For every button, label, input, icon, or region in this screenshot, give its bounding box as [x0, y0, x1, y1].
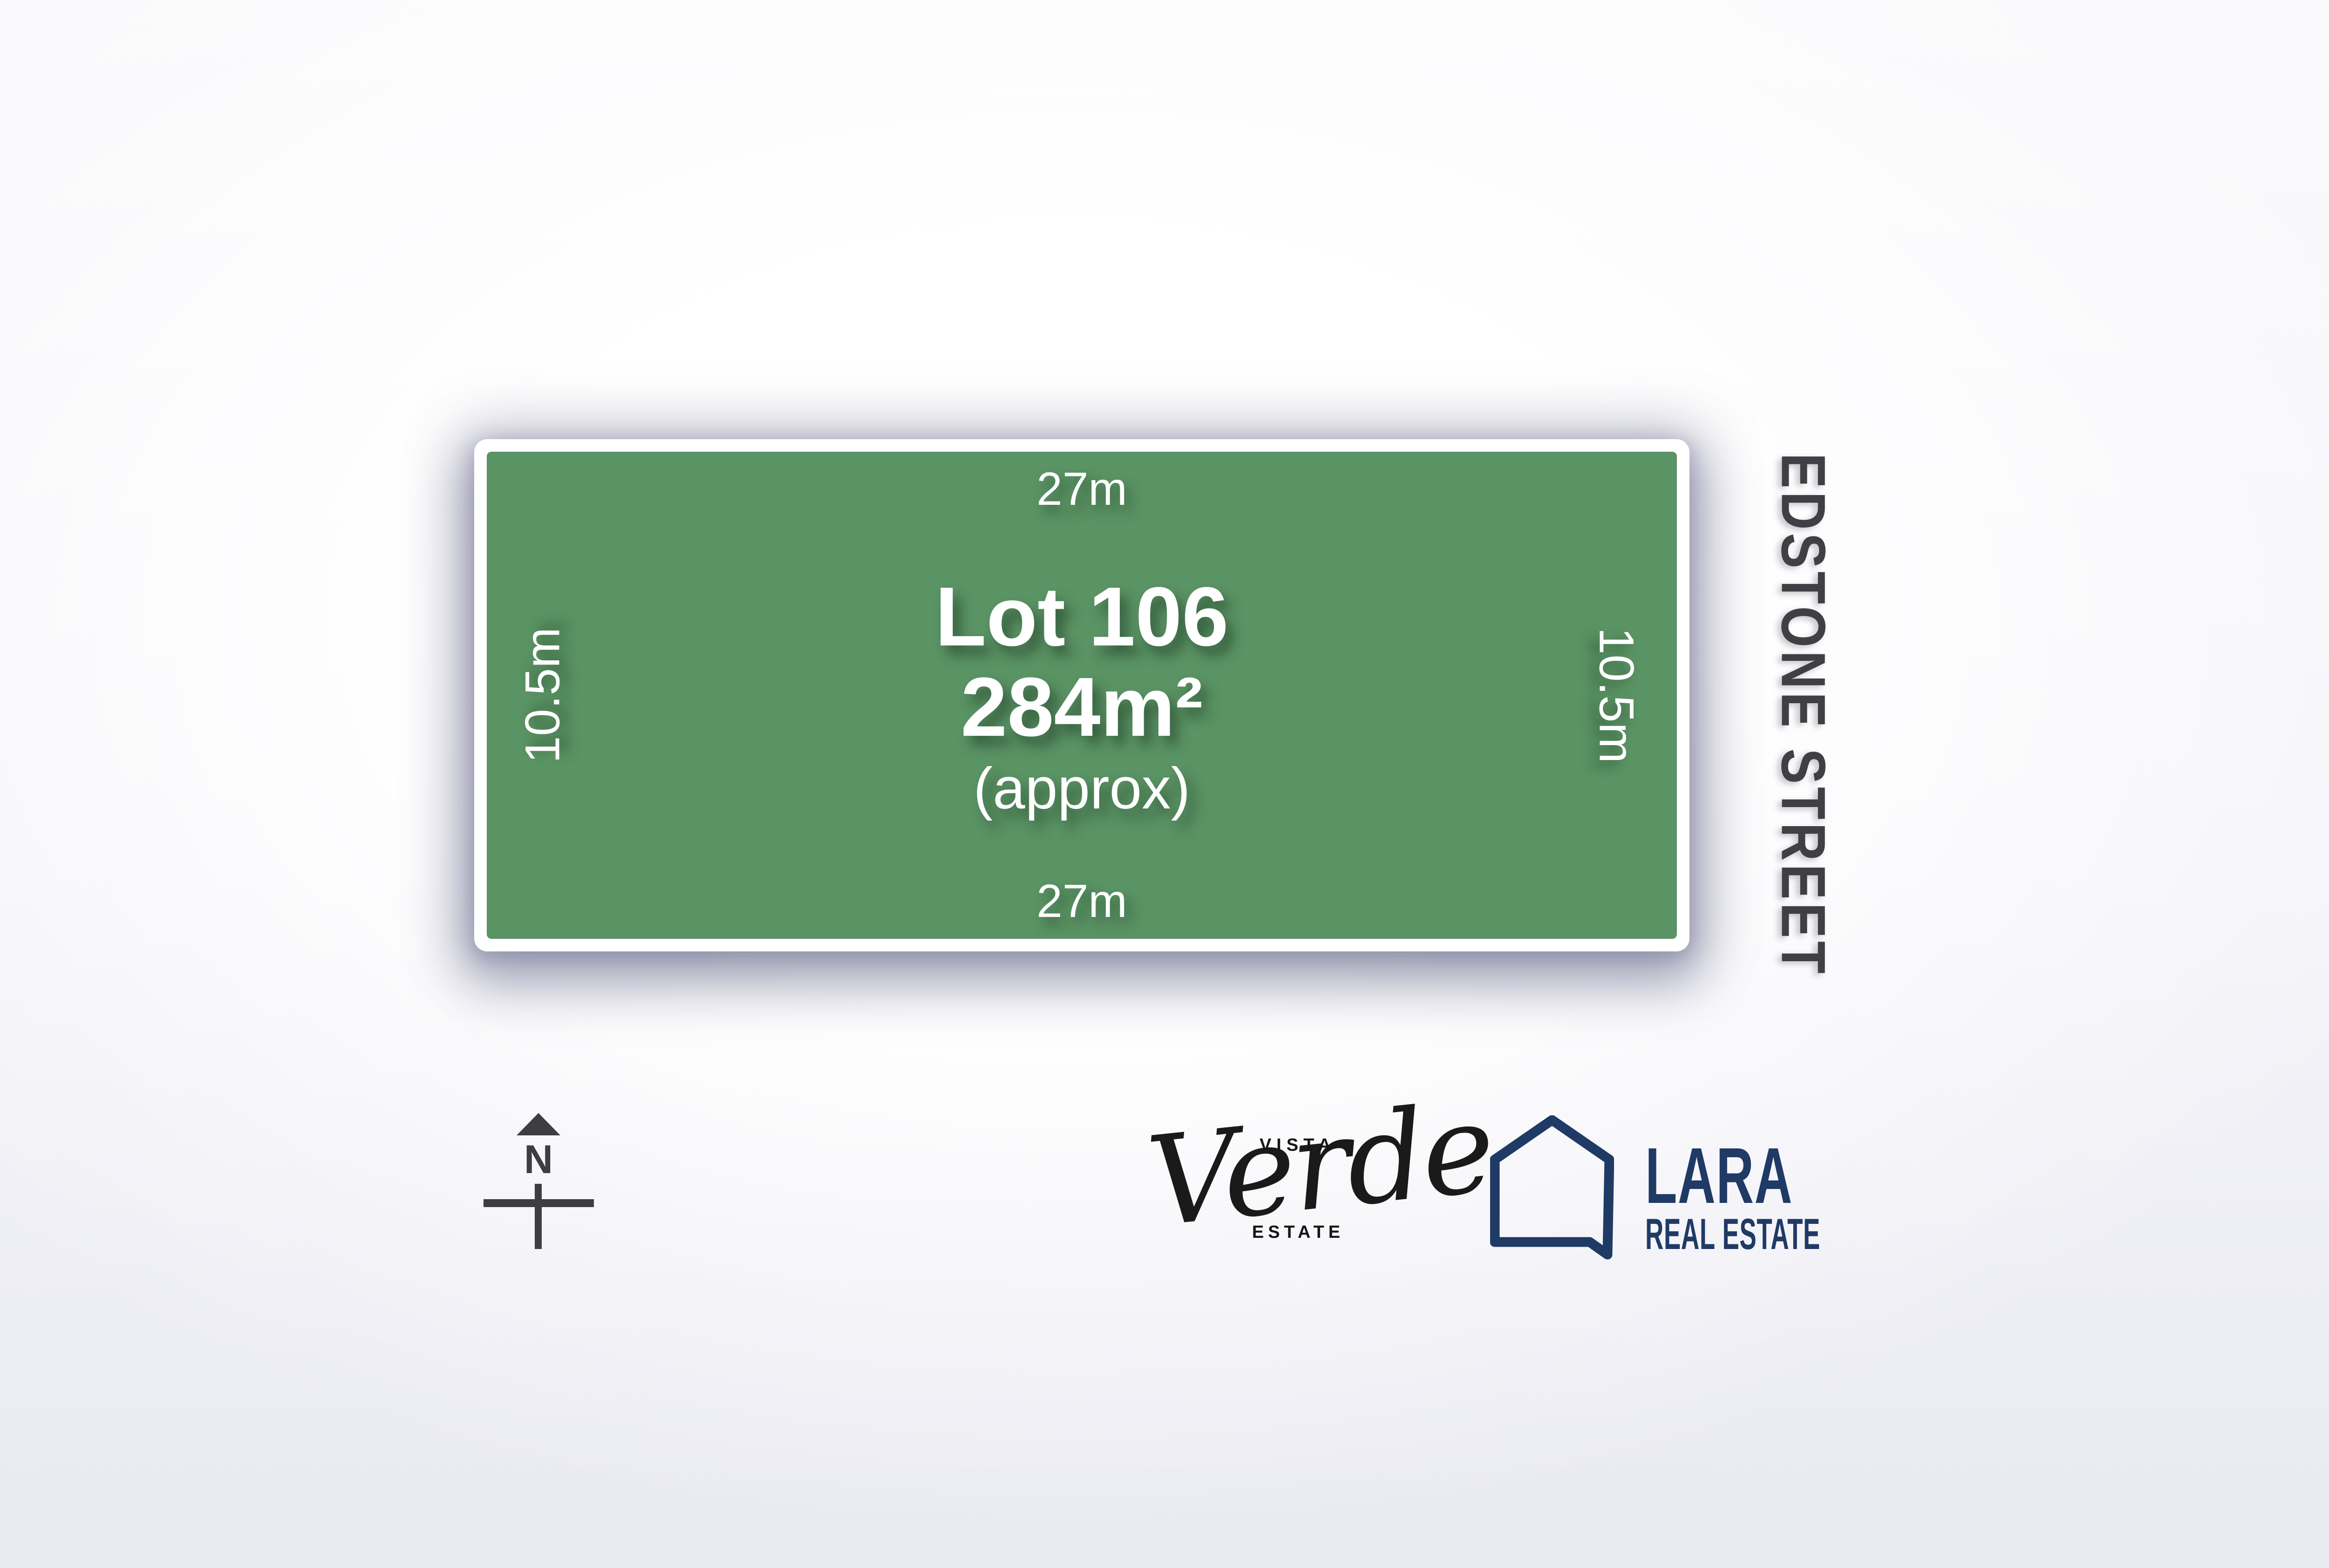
compass-north-label: N	[524, 1140, 553, 1180]
street-label: EDSTONE STREET	[1768, 453, 1839, 977]
vista-verde-bottom-label: ESTATE	[1252, 1223, 1344, 1241]
house-outline-icon	[1490, 1115, 1614, 1261]
lara-subtitle: REAL ESTATE	[1645, 1212, 1820, 1256]
lot-advertisement: 27m 27m 10.5m 10.5m Lot 106 284m² (appro…	[0, 0, 2329, 1568]
compass-cross-vertical-icon	[535, 1184, 542, 1249]
dimension-bottom: 27m	[474, 878, 1689, 924]
north-arrow-icon	[517, 1113, 560, 1135]
lot-info-block: Lot 106 284m² (approx)	[474, 575, 1689, 818]
vista-verde-top-label: VISTA	[1260, 1136, 1336, 1154]
lara-wordmark: LARA	[1645, 1136, 1793, 1215]
lot-area-qualifier: (approx)	[474, 760, 1689, 818]
lot-number-label: Lot 106	[474, 575, 1689, 659]
lot-area-label: 284m²	[474, 665, 1689, 749]
lot-boundary-frame: 27m 27m 10.5m 10.5m Lot 106 284m² (appro…	[474, 439, 1689, 951]
dimension-top: 27m	[474, 466, 1689, 512]
